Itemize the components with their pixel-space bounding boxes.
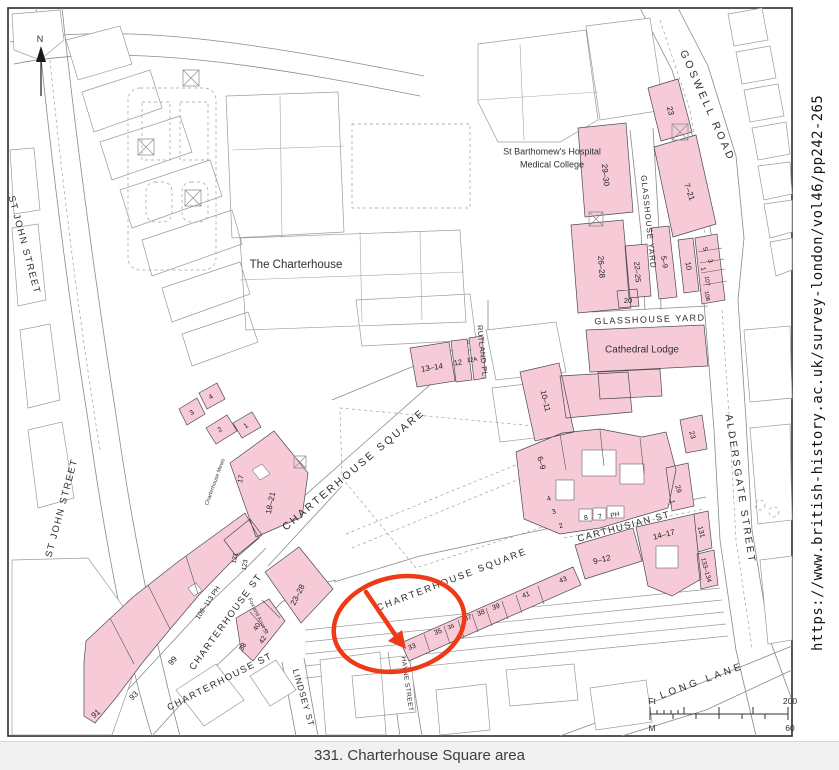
figure: N Ft 200 M 60 ST JOHN STREETST JOHN STRE… [0, 0, 839, 770]
scale-meters-unit: M [648, 723, 655, 733]
map-label: 20 [624, 296, 632, 305]
scale-meters-max: 60 [785, 723, 795, 733]
map-label: 12 [453, 357, 463, 367]
scale-feet-unit: Ft [648, 696, 656, 706]
map-label: Medical College [520, 159, 584, 169]
figure-caption-text: 331. Charterhouse Square area [314, 747, 525, 764]
map-label: The Charterhouse [250, 259, 343, 271]
map-label: 26–28 [596, 256, 607, 279]
north-label: N [37, 34, 44, 44]
map-label: Cathedral Lodge [605, 345, 679, 356]
scale-feet-max: 200 [783, 696, 797, 706]
map-label: St Barthomew's Hospital [503, 146, 601, 156]
map-svg: N Ft 200 M 60 ST JOHN STREETST JOHN STRE… [0, 0, 839, 742]
source-url: https://www.british-history.ac.uk/survey… [797, 10, 839, 736]
figure-caption: 331. Charterhouse Square area [0, 741, 839, 770]
map-label: 10 [683, 261, 693, 271]
map-label: 22–25 [632, 261, 642, 282]
